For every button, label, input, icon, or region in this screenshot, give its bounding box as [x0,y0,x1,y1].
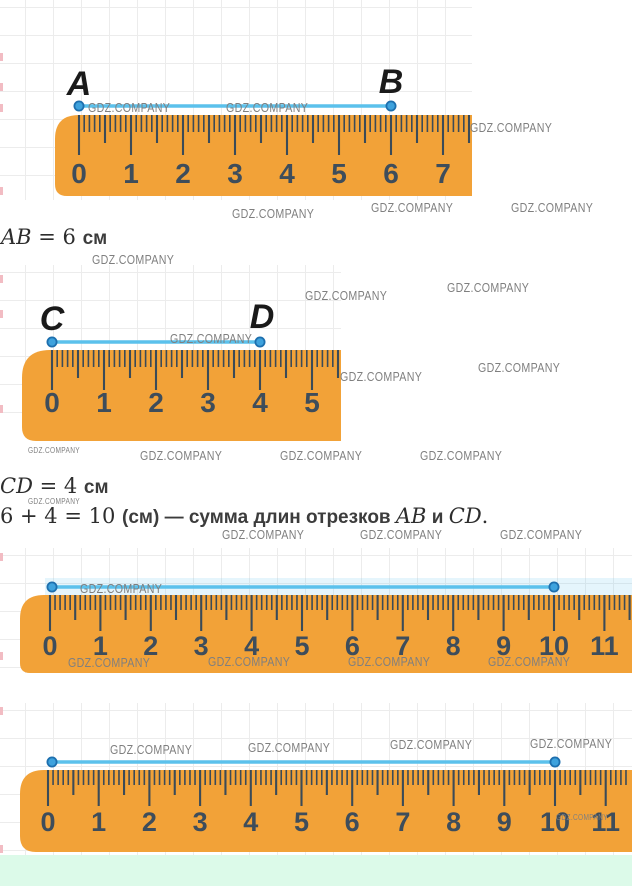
ruler-number: 6 [383,158,399,189]
text-run: . [482,504,489,528]
ruler-number: 2 [175,158,191,189]
ruler-number: 5 [304,387,320,418]
text-run: см [84,477,109,498]
watermark: GDZ.COMPANY [340,369,422,384]
segment-endpoint [255,337,264,346]
watermark: GDZ.COMPANY [248,740,330,755]
watermark: GDZ.COMPANY [208,654,290,669]
ruler-number: 3 [193,807,208,837]
watermark: GDZ.COMPANY [28,446,80,455]
watermark: GDZ.COMPANY [140,448,222,463]
watermark: GDZ.COMPANY [226,100,308,115]
ruler-number: 0 [40,807,55,837]
segment-endpoint [549,582,558,591]
text-run: 6 + 4 = 10 [0,504,122,528]
watermark: GDZ.COMPANY [110,742,192,757]
segment-endpoint [550,757,559,766]
text-run: CD [449,504,482,528]
watermark: GDZ.COMPANY [280,448,362,463]
text-run: (см) — сумма длин отрезков [122,507,396,528]
watermark: GDZ.COMPANY [390,737,472,752]
text-run: AB [1,225,32,249]
watermark: GDZ.COMPANY [447,280,529,295]
text-run: = 4 [33,474,84,498]
watermark: GDZ.COMPANY [478,360,560,375]
solution-page: 01234567AB012345CD0123456789101101234567… [0,0,632,886]
ruler-number: 2 [148,387,164,418]
watermark: GDZ.COMPANY [371,200,453,215]
text-run: CD [0,474,33,498]
point-label-A: A [66,65,92,103]
text-run: AB [396,504,427,528]
segment-endpoint [47,582,56,591]
ruler-number: 0 [71,158,87,189]
ruler-number: 8 [446,807,461,837]
watermark: GDZ.COMPANY [500,527,582,542]
ruler-number: 1 [96,387,112,418]
watermark: GDZ.COMPANY [488,654,570,669]
ruler-number: 3 [227,158,243,189]
ruler-number: 5 [331,158,347,189]
text-run: см [83,228,108,249]
ruler-number: 5 [294,631,309,661]
ruler-number: 1 [123,158,139,189]
text-run: = 6 [32,225,83,249]
ruler-number: 8 [446,631,461,661]
watermark: GDZ.COMPANY [88,100,170,115]
point-label-D: D [250,298,275,336]
watermark: GDZ.COMPANY [530,736,612,751]
ruler-number: 7 [395,807,410,837]
ruler-number: 10 [540,807,570,837]
ruler-number: 4 [279,158,295,189]
answer-line-ab: AB = 6 см [1,226,107,250]
watermark: GDZ.COMPANY [232,206,314,221]
ruler-number: 0 [42,631,57,661]
ruler-number: 5 [294,807,309,837]
point-label-B: B [379,63,404,101]
watermark: GDZ.COMPANY [170,331,252,346]
ruler-number: 11 [590,631,619,661]
watermark: GDZ.COMPANY [420,448,502,463]
segment-endpoint [386,101,395,110]
watermark: GDZ.COMPANY [470,120,552,135]
ruler-number: 4 [252,387,268,418]
watermark: GDZ.COMPANY [28,497,80,506]
point-label-C: C [40,300,65,338]
answer-line-cd: CD = 4 см [0,475,109,499]
ruler-number: 3 [200,387,216,418]
ruler-number: 3 [194,631,209,661]
footer-bar [0,855,632,886]
watermark: GDZ.COMPANY [556,813,608,822]
watermark: GDZ.COMPANY [80,581,162,596]
ruler-number: 6 [345,807,360,837]
segment-endpoint [47,337,56,346]
ruler-number: 1 [91,807,106,837]
text-run: и [427,507,449,528]
watermark: GDZ.COMPANY [511,200,593,215]
watermark: GDZ.COMPANY [348,654,430,669]
watermark: GDZ.COMPANY [68,655,150,670]
ruler-body [55,115,472,196]
ruler-number: 7 [435,158,451,189]
ruler-number: 4 [243,807,258,837]
watermark: GDZ.COMPANY [305,288,387,303]
watermark: GDZ.COMPANY [222,527,304,542]
answer-line-sum: 6 + 4 = 10 (см) — сумма длин отрезков AB… [0,505,488,529]
ruler-number: 0 [44,387,60,418]
watermark: GDZ.COMPANY [92,252,174,267]
ruler-number: 11 [591,807,620,837]
ruler-number: 9 [497,807,512,837]
watermark: GDZ.COMPANY [360,527,442,542]
segment-endpoint [47,757,56,766]
ruler-number: 2 [142,807,157,837]
